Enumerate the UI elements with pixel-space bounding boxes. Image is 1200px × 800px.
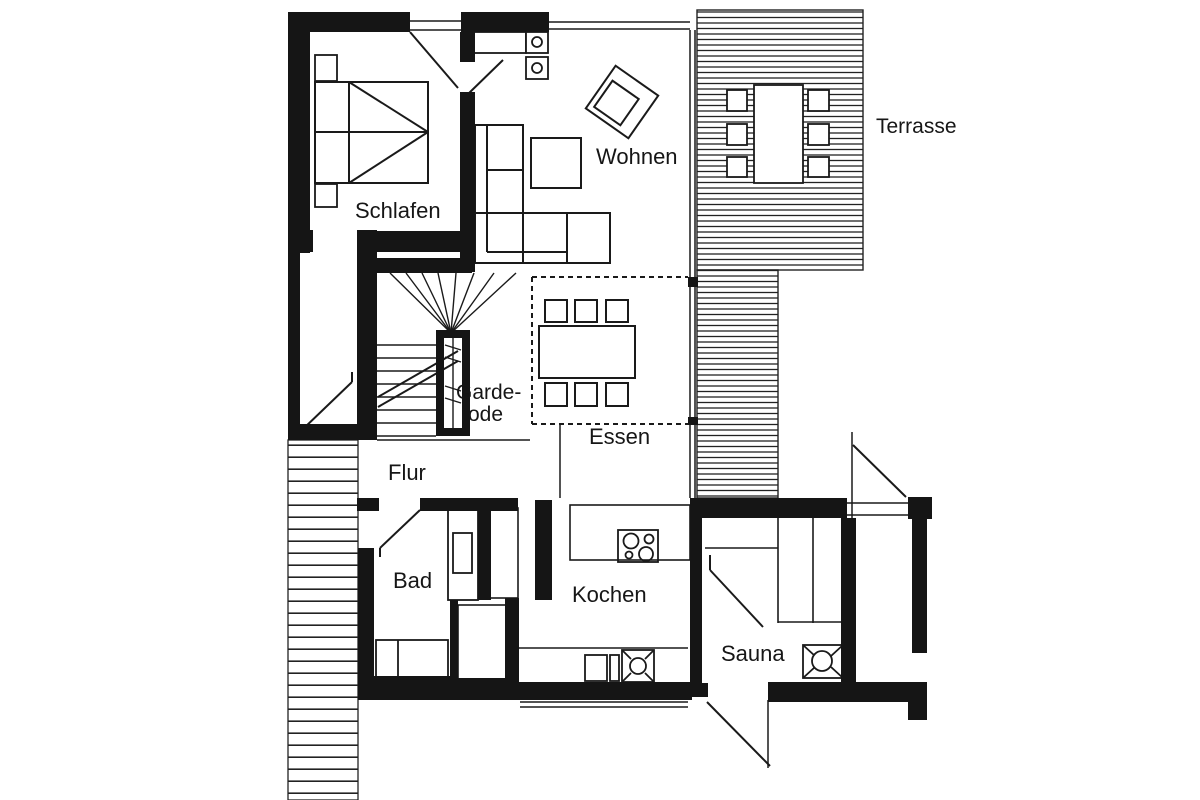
label-kochen: Kochen [572,582,647,607]
floor-plan-canvas: Schlafen Wohnen Terrasse Garde- rode Ess… [0,0,1200,800]
shower-tray [376,640,448,678]
sauna-benches [705,518,841,623]
floor-plan-drawing: Schlafen Wohnen Terrasse Garde- rode Ess… [0,0,1200,800]
label-essen: Essen [589,424,650,449]
kitchen-sink [585,650,654,682]
exterior-steps [288,440,358,800]
label-schlafen: Schlafen [355,198,441,223]
coffee-table [531,138,581,188]
sauna-heater [803,645,843,678]
armchair [586,66,658,138]
label-sauna: Sauna [721,641,785,666]
window-south-kitchen [520,702,688,707]
terrace-table [754,85,803,183]
cooktop [618,530,658,562]
label-bad: Bad [393,568,432,593]
bathroom-fixture [448,508,478,600]
label-flur: Flur [388,460,426,485]
window-wall-east [690,30,695,498]
label-wohnen: Wohnen [596,144,678,169]
label-garderobe-line2: rode [461,403,503,426]
kitchenette-counter [468,32,548,79]
window-sauna-annex [847,503,908,515]
double-bed [315,82,428,183]
room-labels: Schlafen Wohnen Terrasse Garde- rode Ess… [355,115,957,666]
label-terrasse: Terrasse [876,115,957,138]
terrace-decking [697,10,863,498]
dining-table [539,326,635,378]
label-garderobe-line1: Garde- [456,381,521,404]
window-north [410,21,690,30]
